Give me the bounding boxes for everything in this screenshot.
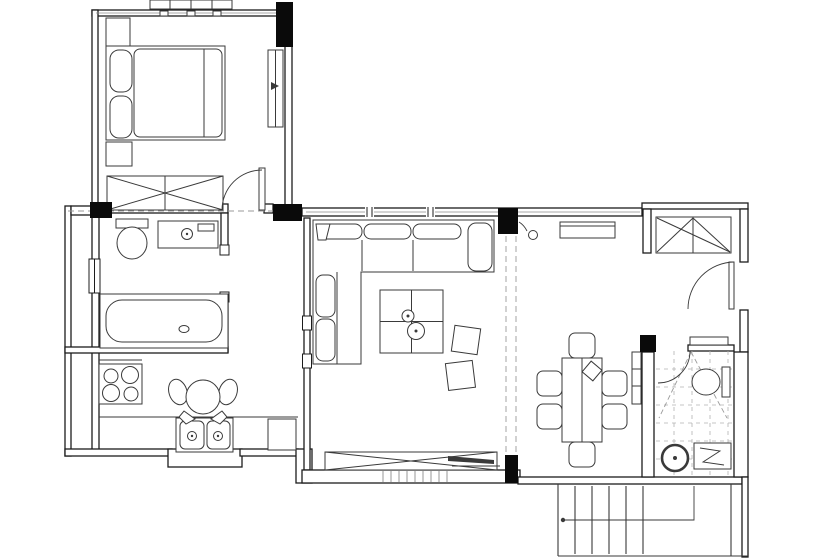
nightstand-bottom [106, 142, 132, 166]
dresser-tick-1 [160, 11, 168, 16]
niche-1 [303, 316, 312, 330]
wall-sensor [529, 231, 538, 240]
wall-left-outer [65, 206, 71, 456]
wall-closet-left [643, 209, 651, 253]
stair-direction-dot [561, 518, 565, 522]
column-living-dining-bottom [505, 455, 518, 483]
dining-sideboard [560, 222, 615, 238]
bath-door-jamb-top [220, 245, 229, 255]
dining-chair-top [569, 333, 595, 358]
wall-wc-top [688, 345, 734, 351]
wc-toilet-bowl [692, 369, 720, 395]
sofa-return-cushion-2 [316, 319, 335, 361]
column-left-junction [90, 202, 112, 218]
floor-plan-drawing [0, 0, 820, 560]
kitchen-round-table [186, 380, 220, 414]
burner-2 [122, 367, 139, 384]
wall-wc-left [642, 352, 654, 477]
dresser-tick-2 [187, 11, 195, 16]
sofa-back-cushion-2 [364, 224, 411, 239]
wall-bath-right-upper [221, 213, 228, 247]
wc-shelf [690, 337, 728, 345]
dining-chair-left-2 [537, 404, 562, 429]
wall-living-bottom [302, 470, 520, 483]
entry-door-leaf [729, 262, 734, 309]
dining-chair-right-1 [602, 371, 627, 396]
wall-dining-bottom [518, 477, 742, 484]
wall-kitchen-bottom-left [65, 449, 172, 456]
bed-mattress [134, 49, 222, 137]
column-hall-top [273, 204, 302, 221]
bathtub-drain [179, 326, 189, 333]
wall-top-right [642, 203, 748, 209]
kitchen-appliance [268, 419, 296, 450]
sofa-return-cushion-1 [316, 275, 335, 317]
wall-left-inner [92, 213, 99, 451]
niche-2 [303, 354, 312, 368]
floor-plan-page [0, 0, 820, 560]
wc-toilet-tank [722, 367, 730, 397]
pillow-2 [110, 96, 132, 138]
wall-console [632, 352, 641, 404]
sofa-back-cushion-3 [413, 224, 461, 239]
bedroom-door-leaf [259, 168, 265, 210]
toilet-bowl [117, 227, 147, 259]
pouf-2 [445, 360, 475, 390]
burner-4 [124, 387, 138, 401]
dining-chair-right-2 [602, 404, 627, 429]
wall-right-lower-outer [742, 477, 748, 557]
wall-wc-right [734, 352, 748, 477]
wall-right-mid [740, 310, 748, 352]
wall-living-west [304, 218, 310, 470]
sofa-armrest-right [468, 223, 492, 271]
dining-chair-left-1 [537, 371, 562, 396]
vanity-accessory [198, 224, 214, 231]
burner-3 [103, 385, 120, 402]
column-wc-topleft [640, 335, 656, 352]
pouf-1 [451, 325, 480, 354]
column-living-dining-top [498, 208, 518, 234]
nightstand-top [106, 18, 130, 46]
wall-bath-top [71, 206, 92, 215]
dresser-tick-3 [213, 11, 221, 16]
wall-bedroom-left [92, 10, 98, 206]
bathtub-inner [106, 300, 222, 342]
wall-right-upper [740, 209, 748, 262]
dining-chair-bottom [569, 442, 595, 467]
column-bedroom-topright [276, 2, 293, 47]
burner-1 [104, 369, 118, 383]
pillow-1 [110, 50, 132, 92]
